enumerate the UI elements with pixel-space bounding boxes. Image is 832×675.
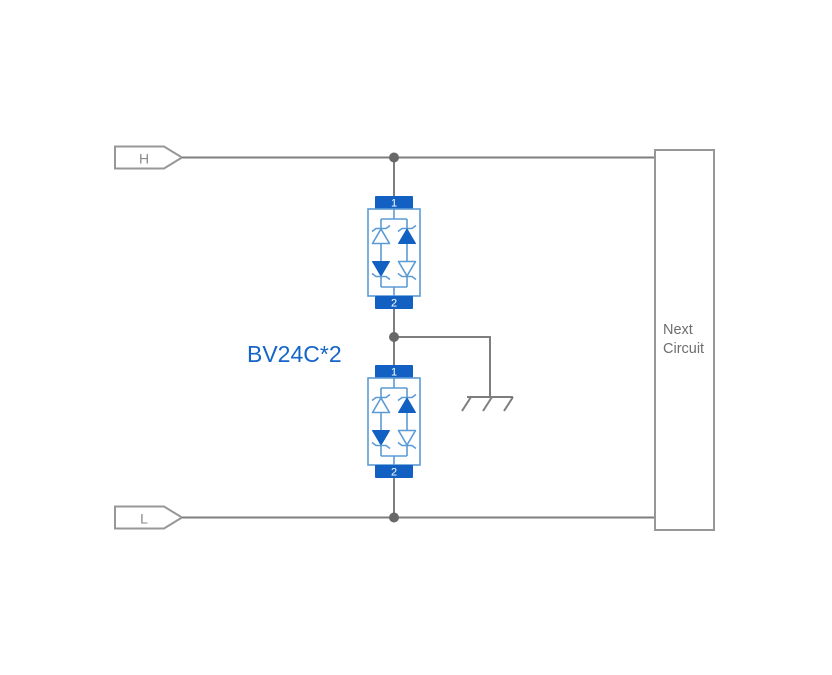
zener-diode-up-hollow [373,229,390,244]
ground-symbol [462,397,513,411]
tvs-diode-block-top: 1 2 [368,196,420,310]
internal-wiring [381,378,407,465]
component-designation-label: BV24C*2 [247,341,342,367]
ground-hatch-3 [504,397,513,411]
zener-diode-up-hollow [373,398,390,413]
next-circuit-block: Next Circuit [655,150,714,530]
next-circuit-label-line1: Next [663,322,693,338]
tvs-diode-block-bottom: 1 2 [368,365,420,479]
zener-diode-down-filled [373,262,390,277]
l-terminal-tag: L [115,507,182,529]
pin1-label: 1 [391,367,397,379]
h-terminal-tag: H [115,147,182,169]
h-tag-label: H [139,151,149,167]
pin2-label: 2 [391,298,397,310]
junction-dot-h-line [389,153,399,163]
pin1-label: 1 [391,198,397,210]
component-body [368,209,420,296]
junction-dot-l-line [389,513,399,523]
next-circuit-label-line2: Circuit [663,341,704,357]
ground-hatch-1 [462,397,471,411]
zener-diode-down-hollow [399,431,416,446]
next-circuit-box [655,150,714,530]
pin2-label: 2 [391,467,397,479]
circuit-diagram: H L Next Circuit [0,0,832,675]
circuit-canvas: H L Next Circuit [0,0,832,675]
zener-diode-up-filled [399,398,416,413]
ground-hatch-2 [483,397,492,411]
component-body [368,378,420,465]
zener-diode-up-filled [399,229,416,244]
zener-diode-down-filled [373,431,390,446]
internal-wiring [381,209,407,296]
junction-dot-midpoint [389,332,399,342]
l-tag-label: L [140,511,148,527]
l-tag-shape [115,507,182,529]
zener-diode-down-hollow [399,262,416,277]
